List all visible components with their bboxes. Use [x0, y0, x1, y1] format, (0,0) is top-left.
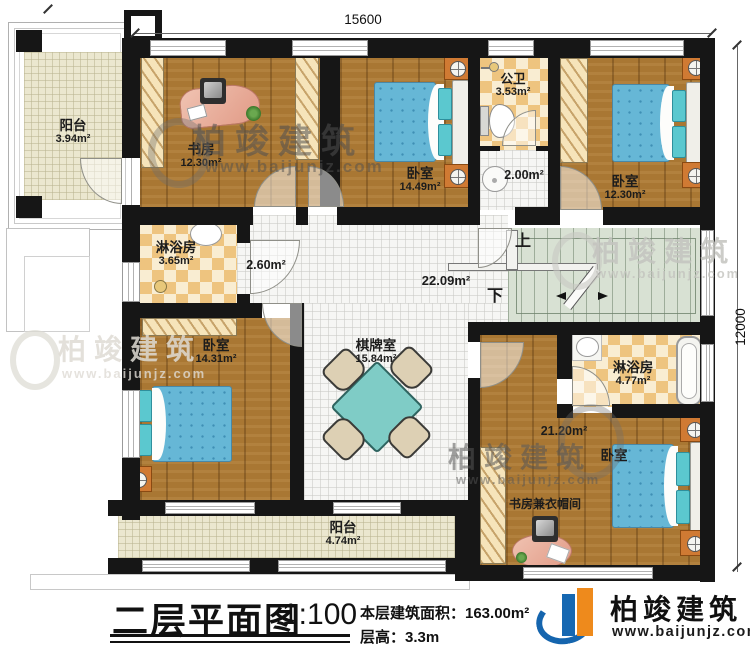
room-label-bedroom-top-right: 卧室12.30m² — [605, 174, 646, 201]
bathtub-inner — [681, 343, 697, 399]
wardrobe — [480, 447, 506, 564]
watermark-logo-icon — [10, 330, 60, 390]
room-label-chess-room: 棋牌室15.84m² — [356, 338, 397, 365]
room-label-balcony-top: 阳台3.94m² — [56, 118, 91, 145]
headboard — [452, 80, 469, 166]
stair-arrow-icon — [556, 292, 566, 300]
apron — [30, 574, 470, 590]
brand-url: www.baijunjz.com — [612, 624, 750, 640]
plant-icon — [246, 106, 261, 121]
window — [701, 344, 714, 402]
stairs-up-label: 上 — [515, 233, 531, 251]
dimension-height: 12000 — [733, 302, 747, 352]
title-underline — [110, 634, 350, 637]
sliding-door — [333, 502, 401, 514]
wall — [237, 215, 250, 243]
pillow — [672, 126, 686, 158]
room-label-shower-right: 淋浴房4.77m² — [613, 360, 654, 387]
room-label-washbasin-lobby: 2.00m² — [504, 168, 544, 182]
room-label-hall: 22.09m² — [422, 274, 470, 289]
room-label-bedroom-left: 卧室14.31m² — [196, 338, 237, 365]
window — [122, 390, 140, 458]
dimension-width: 15600 — [337, 12, 389, 27]
room-label-shower-left: 淋浴房3.65m² — [156, 240, 197, 267]
stair-rail — [448, 263, 598, 271]
room-label-public-bathroom: 公卫3.53m² — [496, 72, 531, 98]
title-underline — [110, 641, 350, 643]
wall — [108, 500, 458, 516]
dimension-line — [135, 33, 712, 34]
room-label-balcony-bottom: 阳台4.74m² — [326, 520, 361, 547]
nightstand — [444, 164, 470, 188]
wall — [337, 207, 480, 225]
brand-logo-building — [562, 594, 575, 636]
pillow — [438, 88, 452, 120]
sink-drain — [492, 178, 497, 183]
pillow — [676, 490, 690, 524]
wall — [237, 294, 250, 303]
floor-drain-icon — [154, 280, 167, 293]
wall — [603, 207, 712, 225]
floor-balcony-bottom — [118, 515, 455, 560]
window — [150, 40, 226, 56]
wall — [122, 303, 262, 318]
wardrobe — [295, 50, 319, 160]
ac-platform — [24, 256, 90, 332]
pillow — [676, 452, 690, 486]
wall — [122, 207, 253, 225]
room-label-study: 书房12.30m² — [181, 142, 222, 169]
wall — [296, 207, 308, 225]
room-label-corridor: 2.60m² — [246, 258, 286, 272]
wall — [515, 207, 560, 225]
window — [523, 567, 653, 579]
room-label-bedroom-bottom-area: 21.20m² — [541, 424, 588, 438]
wall — [480, 146, 500, 151]
computer-screen — [204, 82, 222, 98]
wall — [122, 38, 140, 158]
window — [488, 40, 534, 56]
window — [701, 230, 714, 316]
wall — [468, 38, 480, 207]
wardrobe — [560, 58, 588, 163]
balcony-rail — [142, 560, 250, 572]
shower-head-icon — [489, 62, 499, 72]
balcony-post — [16, 30, 42, 52]
plant-icon — [516, 552, 527, 563]
floor-height-text: 层高：3.3m — [360, 626, 439, 647]
nightstand — [444, 56, 470, 80]
bed — [374, 82, 436, 162]
pillow — [438, 124, 452, 156]
room-label-study-cloakroom: 书房兼衣帽间 — [509, 498, 581, 511]
window — [122, 262, 140, 302]
wardrobe — [141, 50, 164, 168]
window — [165, 502, 255, 514]
sink-icon — [576, 337, 599, 357]
pillow — [672, 90, 686, 122]
pillow — [138, 424, 152, 456]
wall — [468, 322, 712, 335]
lamp-icon — [450, 61, 466, 77]
stair-outline — [516, 238, 696, 314]
lamp-icon — [450, 169, 466, 185]
stairs-down-label: 下 — [487, 288, 503, 306]
wall — [122, 205, 140, 520]
computer-screen — [536, 520, 554, 536]
wall — [557, 335, 572, 379]
brand-logo-building — [577, 588, 593, 636]
wall — [548, 38, 560, 207]
window — [590, 40, 684, 56]
stair-arrow-icon — [598, 292, 608, 300]
pillow — [138, 390, 152, 422]
floor-plan: 上 下 阳台3.94m² — [0, 0, 750, 650]
wall — [536, 146, 548, 151]
wall — [468, 322, 480, 342]
room-label-bedroom-bottom: 卧室 — [601, 448, 628, 463]
scale-label: 1:100 — [282, 598, 357, 632]
wall — [557, 404, 573, 418]
window — [292, 40, 368, 56]
balcony-rail — [278, 560, 446, 572]
room-label-bedroom-top-middle: 卧室14.49m² — [400, 166, 441, 193]
brand-name: 柏竣建筑 — [610, 588, 742, 628]
toilet-icon — [480, 106, 489, 136]
balcony-post — [16, 196, 42, 218]
wardrobe — [142, 318, 237, 336]
dimension-tick — [43, 4, 53, 14]
floor-area-text: 本层建筑面积：163.00m² — [360, 602, 529, 623]
wall — [612, 404, 712, 418]
